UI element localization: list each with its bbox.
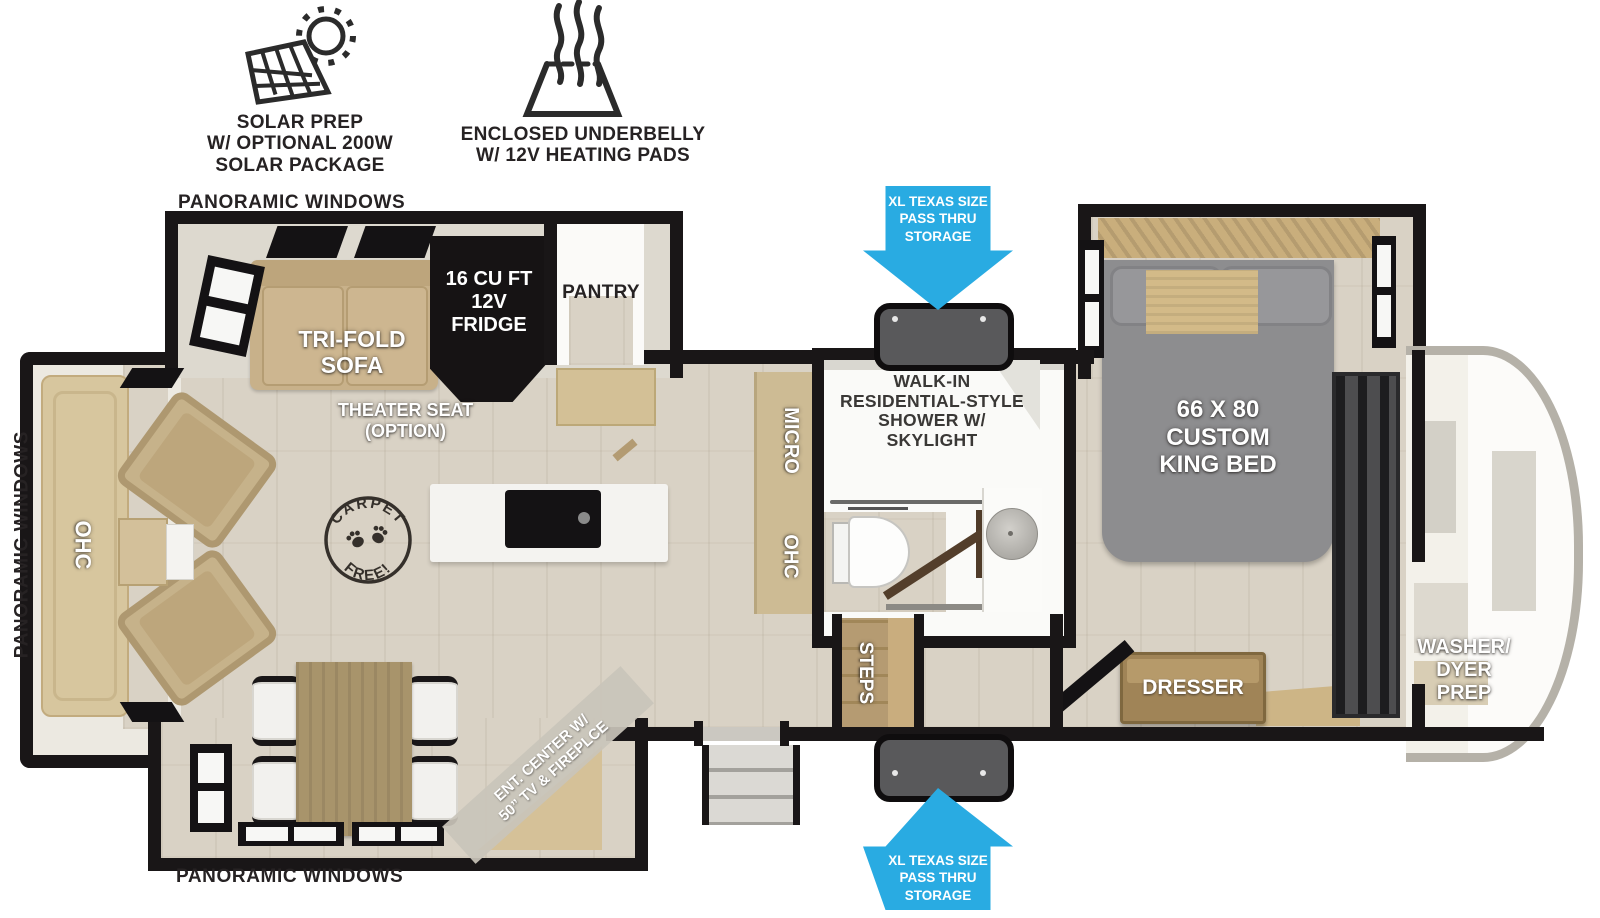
pass-thru-label-top: XL TEXAS SIZE PASS THRU STORAGE: [863, 193, 1013, 245]
cap-wall-upper: [1412, 350, 1425, 562]
dining-table: [296, 662, 412, 836]
entry-door-threshold: [703, 727, 780, 741]
pass-thru-pod-top: [874, 303, 1014, 371]
bedroom-window-left: [1080, 240, 1104, 358]
wall-top-bedroom: [1040, 350, 1094, 364]
pantry-label: PANTRY: [552, 282, 650, 303]
kitchen-ohc-label: OHC: [754, 508, 826, 604]
bedroom-entry-wall: [1050, 614, 1063, 741]
paw-print-icon: [368, 523, 389, 545]
sofa-label: TRI-FOLD SOFA: [262, 326, 442, 379]
window-pane: [1085, 302, 1099, 346]
sofa-back: [250, 260, 438, 286]
front-ohc-label: OHC: [40, 470, 124, 620]
dining-chair: [408, 756, 458, 826]
window-pane: [359, 827, 395, 841]
screw-icon: [980, 770, 986, 776]
window-pane: [246, 827, 288, 841]
fridge-label: 16 CU FT 12V FRIDGE: [430, 268, 548, 337]
kitchen-ohc-text: OHC: [778, 534, 801, 578]
svg-text:FREE!: FREE!: [341, 559, 395, 584]
bath-door-threshold: [886, 604, 986, 610]
pass-thru-arrow-bottom: XL TEXAS SIZE PASS THRU STORAGE: [863, 788, 1013, 910]
solar-prep-label: SOLAR PREP W/ OPTIONAL 200W SOLAR PACKAG…: [150, 112, 450, 176]
micro-label: MICRO: [754, 384, 826, 496]
screw-icon: [980, 316, 986, 322]
sofa-window-1-icon: [266, 226, 348, 258]
pass-thru-label-bottom: XL TEXAS SIZE PASS THRU STORAGE: [863, 852, 1013, 904]
window-pane: [401, 827, 437, 841]
lounge-side-table-tray: [166, 524, 194, 580]
dinette-bottom-window-1: [238, 822, 344, 846]
steps-wall-left: [832, 614, 842, 728]
window-pane: [200, 306, 246, 346]
underbelly-label: ENCLOSED UNDERBELLY W/ 12V HEATING PADS: [438, 124, 728, 167]
micro-text: MICRO: [778, 407, 801, 474]
shower-door-handle: [848, 507, 908, 510]
dinette-side-window: [190, 744, 232, 832]
pass-thru-pod-bottom: [874, 734, 1014, 802]
bed-runner: [1146, 270, 1258, 334]
headboard-shelf: [1098, 218, 1380, 258]
window-pane: [209, 267, 254, 305]
lounge-side-table: [118, 518, 168, 586]
shower-label: WALK-IN RESIDENTIAL-STYLE SHOWER W/ SKYL…: [818, 372, 1046, 450]
heated-underbelly-icon: [515, 0, 630, 122]
solar-prep-icon: [228, 4, 368, 112]
panoramic-windows-label-bottom: PANORAMIC WINDOWS: [176, 866, 466, 887]
window-pane: [1377, 245, 1391, 287]
pass-thru-arrow-top: XL TEXAS SIZE PASS THRU STORAGE: [863, 186, 1013, 310]
window-pane: [294, 827, 336, 841]
panoramic-windows-label-left: PANORAMIC WINDOWS: [11, 375, 32, 715]
entry-door-jamb: [780, 721, 789, 746]
steps-wall-right: [914, 614, 924, 728]
bedroom-window-right: [1372, 236, 1396, 348]
pantry-floor: [569, 296, 633, 365]
washer-dryer-label: WASHER/ DYER PREP: [1398, 636, 1530, 705]
dining-chair: [252, 756, 302, 826]
carpet-free-stamp: CARPET FREE!: [320, 492, 416, 588]
window-pane: [1085, 250, 1099, 294]
wardrobe: [1332, 372, 1400, 718]
kitchen-counter: [556, 368, 656, 426]
front-ohc-text: OHC: [69, 521, 95, 570]
window-pane: [198, 791, 224, 823]
entry-steps: [702, 745, 800, 825]
steps-label: STEPS: [842, 622, 888, 724]
window-pane: [1377, 295, 1391, 337]
entry-door-jamb: [694, 721, 703, 746]
bedroom-steps-side: [888, 618, 914, 728]
window-pane: [198, 753, 224, 783]
theater-seat-label: THEATER SEAT (OPTION): [318, 400, 493, 441]
steps-text: STEPS: [854, 642, 876, 704]
screw-icon: [892, 770, 898, 776]
sofa-window-2-icon: [354, 226, 436, 258]
screw-icon: [892, 316, 898, 322]
dining-chair: [252, 676, 302, 746]
paw-print-icon: [345, 528, 367, 550]
stamp-text-bottom: FREE!: [341, 559, 395, 584]
dinette-bottom-window-2: [352, 822, 444, 846]
cap-panel: [1492, 451, 1536, 611]
king-bed-label: 66 X 80 CUSTOM KING BED: [1102, 396, 1334, 479]
dresser-label: DRESSER: [1142, 676, 1244, 700]
wall-top-kitchen: [644, 350, 824, 364]
dresser: DRESSER: [1120, 652, 1266, 724]
dining-chair: [408, 676, 458, 746]
panoramic-windows-label-top: PANORAMIC WINDOWS: [178, 192, 468, 213]
sink-drain: [1008, 531, 1013, 536]
island-sink-drain: [578, 512, 590, 524]
floorplan: SOLAR PREP W/ OPTIONAL 200W SOLAR PACKAG…: [0, 0, 1600, 918]
